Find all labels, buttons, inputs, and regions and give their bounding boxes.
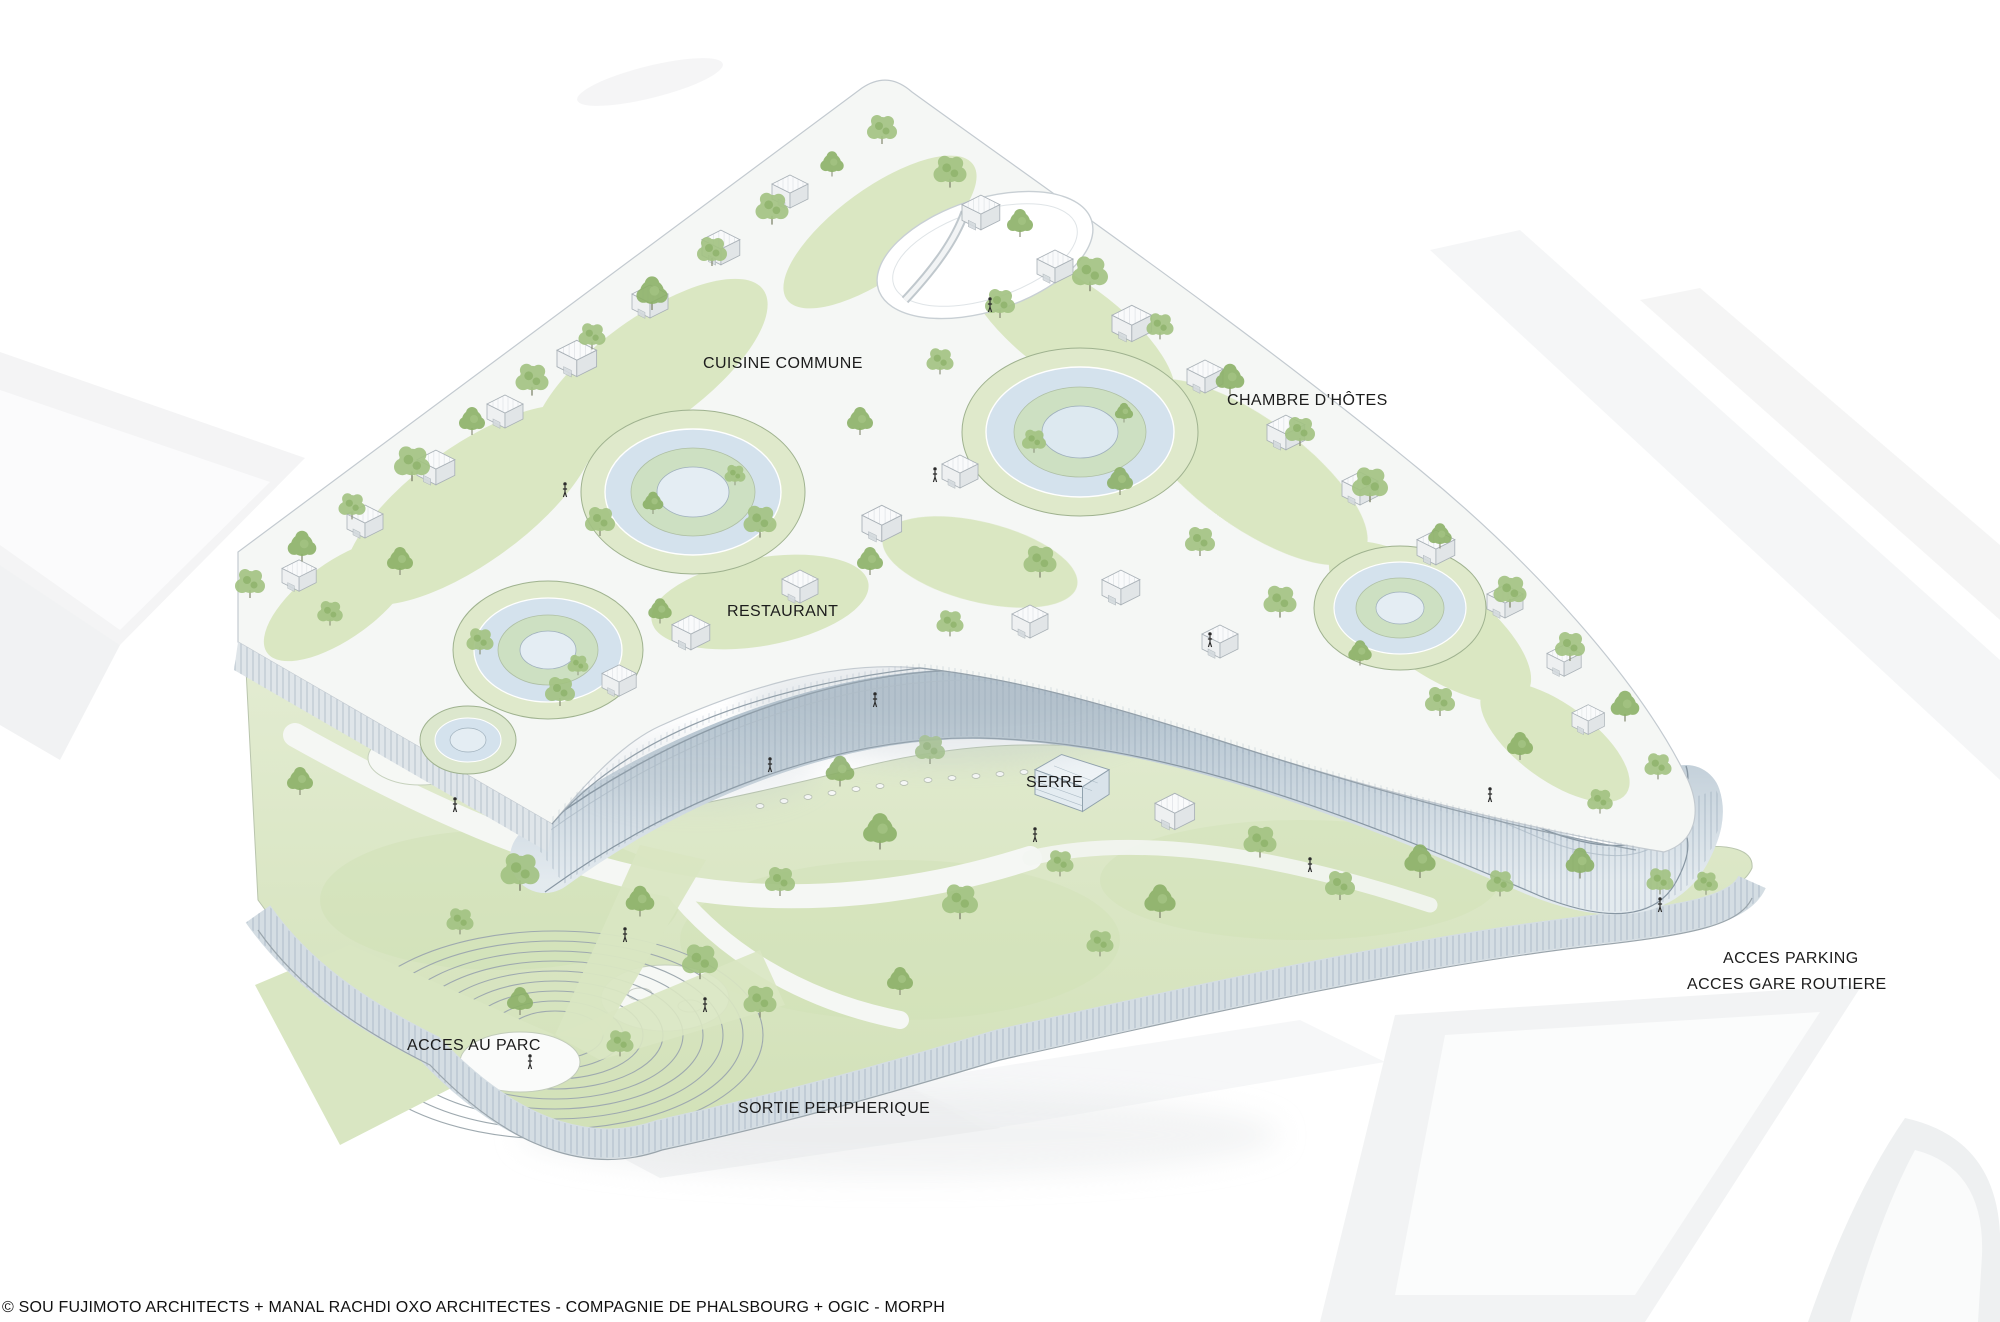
architectural-rendering: CUISINE COMMUNE CHAMBRE D’HÔTES RESTAURA… [0, 0, 2000, 1322]
label-chambre-dhotes: CHAMBRE D’HÔTES [1227, 393, 1388, 409]
label-acces-au-parc: ACCES AU PARC [407, 1038, 541, 1054]
credit-line: © SOU FUJIMOTO ARCHITECTS + MANAL RACHDI… [2, 1298, 945, 1317]
label-acces-parking: ACCES PARKING [1723, 951, 1859, 967]
label-cuisine-commune: CUISINE COMMUNE [703, 356, 863, 372]
label-restaurant: RESTAURANT [727, 604, 838, 620]
axonometric-drawing [0, 0, 2000, 1322]
label-serre: SERRE [1026, 775, 1083, 791]
label-acces-gare-routiere: ACCES GARE ROUTIERE [1687, 977, 1887, 993]
label-sortie-peripherique: SORTIE PERIPHERIQUE [738, 1101, 930, 1117]
